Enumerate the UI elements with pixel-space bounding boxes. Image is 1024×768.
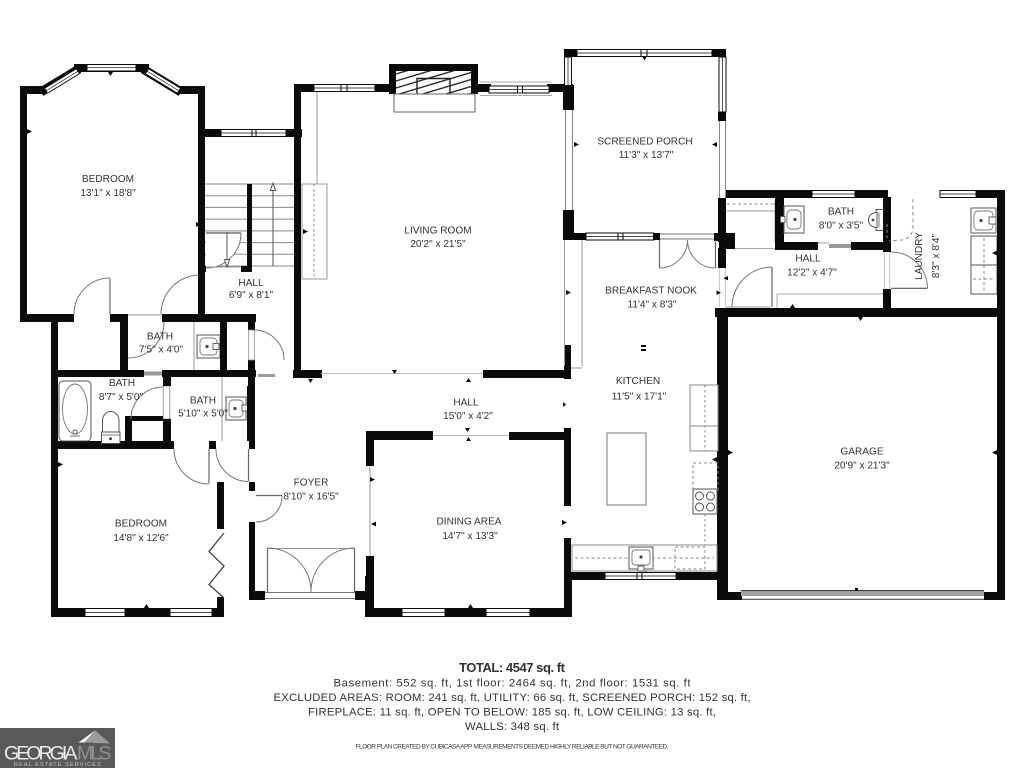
svg-text:BREAKFAST NOOK: BREAKFAST NOOK (605, 286, 697, 297)
svg-text:12'2" x 4'7": 12'2" x 4'7" (787, 268, 837, 279)
svg-text:11'4" x 8'3": 11'4" x 8'3" (628, 300, 677, 311)
svg-text:13'1" x 18'8": 13'1" x 18'8" (80, 188, 136, 199)
svg-text:HALL: HALL (795, 254, 821, 265)
svg-text:5'10" x 5'0": 5'10" x 5'0" (178, 409, 228, 420)
svg-text:WALLS: 348 sq. ft: WALLS: 348 sq. ft (465, 721, 560, 733)
svg-text:TOTAL: 4547 sq. ft: TOTAL: 4547 sq. ft (459, 660, 566, 675)
svg-text:Basement: 552 sq. ft, 1st floo: Basement: 552 sq. ft, 1st floor: 2464 sq… (334, 677, 692, 689)
svg-text:DINING AREA: DINING AREA (436, 517, 501, 528)
svg-text:11'3" x 13'7": 11'3" x 13'7" (619, 150, 674, 161)
svg-text:GARAGE: GARAGE (840, 447, 883, 458)
svg-text:FIREPLACE: 11 sq. ft, OPEN TO: FIREPLACE: 11 sq. ft, OPEN TO BELOW: 185… (308, 706, 716, 718)
svg-text:8'7" x 5'0": 8'7" x 5'0" (99, 392, 144, 403)
svg-text:8'10" x 16'5": 8'10" x 16'5" (283, 492, 339, 503)
svg-text:LAUNDRY: LAUNDRY (914, 232, 925, 280)
svg-text:8'0" x 3'5": 8'0" x 3'5" (819, 221, 864, 232)
svg-text:BATH: BATH (147, 332, 173, 343)
svg-text:BATH: BATH (828, 207, 854, 218)
svg-text:LIVING ROOM: LIVING ROOM (404, 226, 471, 237)
svg-text:20'9" x 21'3": 20'9" x 21'3" (834, 461, 890, 472)
svg-text:SCREENED PORCH: SCREENED PORCH (597, 137, 692, 148)
svg-text:EXCLUDED AREAS: ROOM: 241 sq.: EXCLUDED AREAS: ROOM: 241 sq. ft, UTILIT… (274, 692, 751, 704)
svg-text:HALL: HALL (238, 278, 264, 289)
svg-text:15'0" x 4'2": 15'0" x 4'2" (443, 411, 493, 422)
svg-text:FLOOR PLAN CREATED BY CUBICASA: FLOOR PLAN CREATED BY CUBICASA APP. MEAS… (356, 744, 669, 751)
svg-text:14'7" x 13'3": 14'7" x 13'3" (442, 531, 498, 542)
svg-text:BATH: BATH (109, 378, 135, 389)
svg-text:7'5" x 4'0": 7'5" x 4'0" (139, 345, 184, 356)
svg-text:KITCHEN: KITCHEN (616, 376, 660, 387)
svg-text:20'2" x 21'5": 20'2" x 21'5" (410, 239, 466, 250)
svg-text:HALL: HALL (453, 398, 479, 409)
svg-text:BATH: BATH (190, 396, 216, 407)
svg-text:BEDROOM: BEDROOM (115, 519, 167, 530)
svg-text:6'9" x 8'1": 6'9" x 8'1" (229, 290, 274, 301)
svg-text:BEDROOM: BEDROOM (82, 174, 134, 185)
svg-text:14'8" x 12'6": 14'8" x 12'6" (113, 533, 169, 544)
svg-text:FOYER: FOYER (294, 478, 329, 489)
svg-text:11'5" x 17'1": 11'5" x 17'1" (612, 392, 667, 403)
svg-text:8'3" x 8'4": 8'3" x 8'4" (931, 234, 942, 279)
svg-text:REAL ESTATE SERVICES: REAL ESTATE SERVICES (14, 762, 102, 768)
